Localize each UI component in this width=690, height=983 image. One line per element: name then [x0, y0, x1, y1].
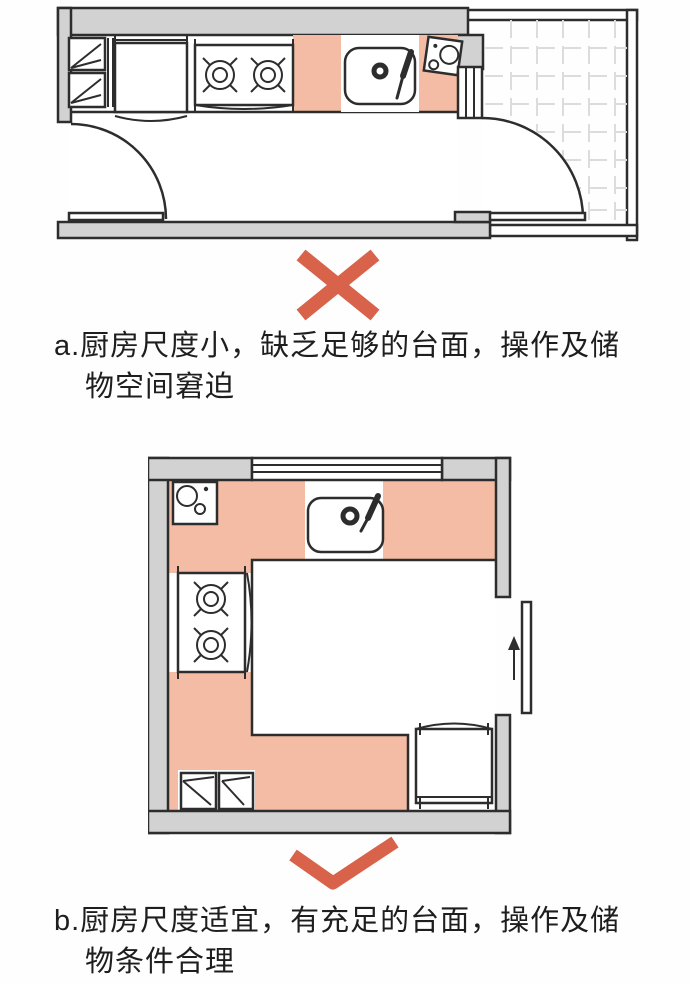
entry-door-leaf-a: [69, 213, 163, 220]
caption-b: b.厨房尺度适宜，有充足的台面，操作及储 物条件合理: [54, 901, 670, 983]
balcony-window-wall-bottom: [490, 225, 637, 236]
balcony-window-wall-top: [460, 10, 637, 20]
balcony-window-wall-right: [627, 10, 637, 240]
refrigerator-b: [416, 723, 492, 809]
floor-plan-b: [148, 452, 536, 836]
gas-stove-a: [195, 39, 293, 111]
small-appliance-a: [424, 37, 462, 75]
caption-a-line1: a.厨房尺度小，缺乏足够的台面，操作及储: [54, 326, 670, 367]
balcony-doorway-frame: [458, 67, 482, 118]
balcony-door-swing: [482, 118, 585, 220]
refrigerator-a: [115, 35, 187, 121]
infographic-page: a.厨房尺度小，缺乏足够的台面，操作及储 物空间窘迫: [0, 0, 690, 983]
caption-b-line1: b.厨房尺度适宜，有充足的台面，操作及储: [54, 901, 670, 942]
check-icon: [278, 830, 403, 898]
balcony-door-leaf: [483, 213, 585, 220]
sink-a: [341, 35, 419, 112]
window-b: [252, 458, 442, 480]
caption-a: a.厨房尺度小，缺乏足够的台面，操作及储 物空间窘迫: [54, 326, 670, 408]
sink-b: [308, 496, 383, 552]
cross-icon: [293, 248, 383, 322]
gas-stove-b: [178, 566, 252, 679]
corner-appliance-b: [173, 482, 217, 524]
caption-a-line2: 物空间窘迫: [54, 367, 670, 408]
entry-door-leaf-b: [522, 602, 531, 713]
entry-door-b: [508, 602, 531, 713]
caption-b-line2: 物条件合理: [54, 942, 670, 983]
base-cabinet-b: [181, 773, 253, 809]
floor-plan-a: [55, 4, 640, 242]
